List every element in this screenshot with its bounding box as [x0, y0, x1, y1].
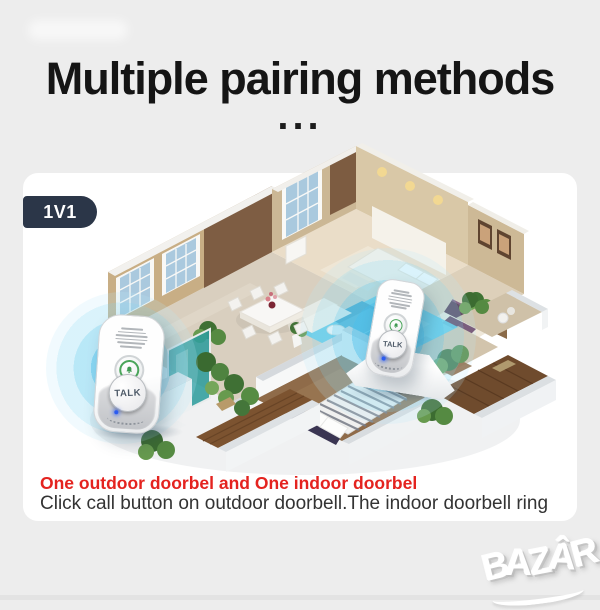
arc-label-marks — [374, 357, 403, 372]
outdoor-doorbell: TALK — [92, 313, 166, 435]
doorbell-lower-plate: TALK — [368, 333, 414, 375]
caption-highlight: One outdoor doorbel and One indoor doorb… — [40, 473, 417, 494]
badge-label: 1V1 — [43, 202, 77, 223]
arc-label-marks — [106, 411, 145, 427]
speaker-grille-icon — [115, 327, 148, 349]
doorbell-lower-plate: TALK — [96, 381, 157, 431]
talk-button: TALK — [377, 329, 408, 360]
speaker-grille-icon — [387, 289, 414, 311]
talk-button: TALK — [108, 373, 147, 412]
page-root: { "header": { "title": "Multiple pairing… — [0, 0, 600, 600]
caption-description: Click call button on outdoor doorbell.Th… — [40, 493, 548, 515]
badge-1v1: 1V1 — [23, 196, 97, 228]
